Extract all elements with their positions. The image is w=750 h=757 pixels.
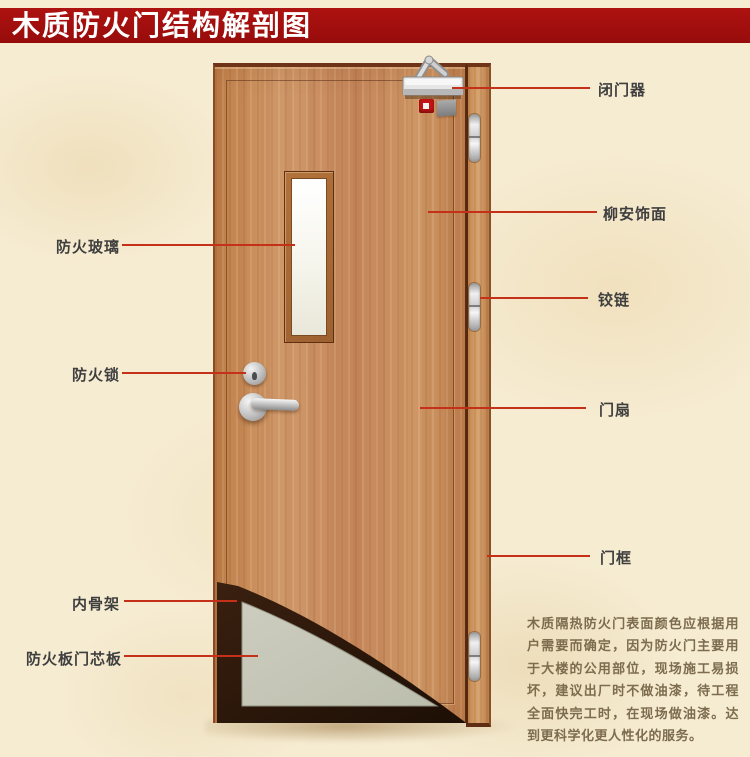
callout-label-inner-skeleton: 内骨架 xyxy=(72,593,120,614)
fire-glass-pane xyxy=(291,178,327,336)
cutaway-section xyxy=(213,578,466,723)
callout-label-fire-glass: 防火玻璃 xyxy=(56,236,120,257)
callout-label-hinge: 铰链 xyxy=(598,289,630,310)
callout-label-door-closer: 闭门器 xyxy=(598,79,646,100)
grey-sticker xyxy=(437,99,456,116)
leader-line-fire-lock xyxy=(122,372,246,374)
hinge-top xyxy=(469,114,480,162)
leader-line-fire-board-core xyxy=(124,655,258,657)
door-closer-graphic xyxy=(395,52,475,102)
leader-line-door-frame xyxy=(487,555,590,557)
vision-panel-frame xyxy=(284,171,334,343)
red-indicator-badge xyxy=(419,99,434,113)
leader-line-door-leaf xyxy=(420,407,586,409)
leader-line-fire-glass xyxy=(122,244,295,246)
callout-label-door-leaf: 门扇 xyxy=(599,399,631,420)
callout-label-fire-lock: 防火锁 xyxy=(72,364,120,385)
description-paragraph: 木质隔热防火门表面颜色应根据用户需要而确定，因为防火门主要用于大楼的公用部位，现… xyxy=(527,613,739,747)
leader-line-door-closer xyxy=(452,87,590,89)
leader-line-hinge xyxy=(480,297,588,299)
callout-label-lauan-veneer: 柳安饰面 xyxy=(603,203,667,224)
core-panel-shape xyxy=(242,602,437,706)
fire-lock-cylinder xyxy=(243,362,266,385)
hinge-bottom xyxy=(469,632,480,681)
diagram-stage: 木质防火门结构解剖图 xyxy=(0,0,750,757)
callout-label-fire-board-core: 防火板门芯板 xyxy=(26,648,122,669)
leader-line-lauan-veneer xyxy=(428,211,597,213)
door-frame-strip xyxy=(466,63,491,727)
hinge-middle xyxy=(469,283,480,331)
handle-lever xyxy=(251,398,299,411)
callout-label-door-frame: 门框 xyxy=(600,547,632,568)
leader-line-inner-skeleton xyxy=(124,600,237,602)
page-title: 木质防火门结构解剖图 xyxy=(0,8,750,43)
